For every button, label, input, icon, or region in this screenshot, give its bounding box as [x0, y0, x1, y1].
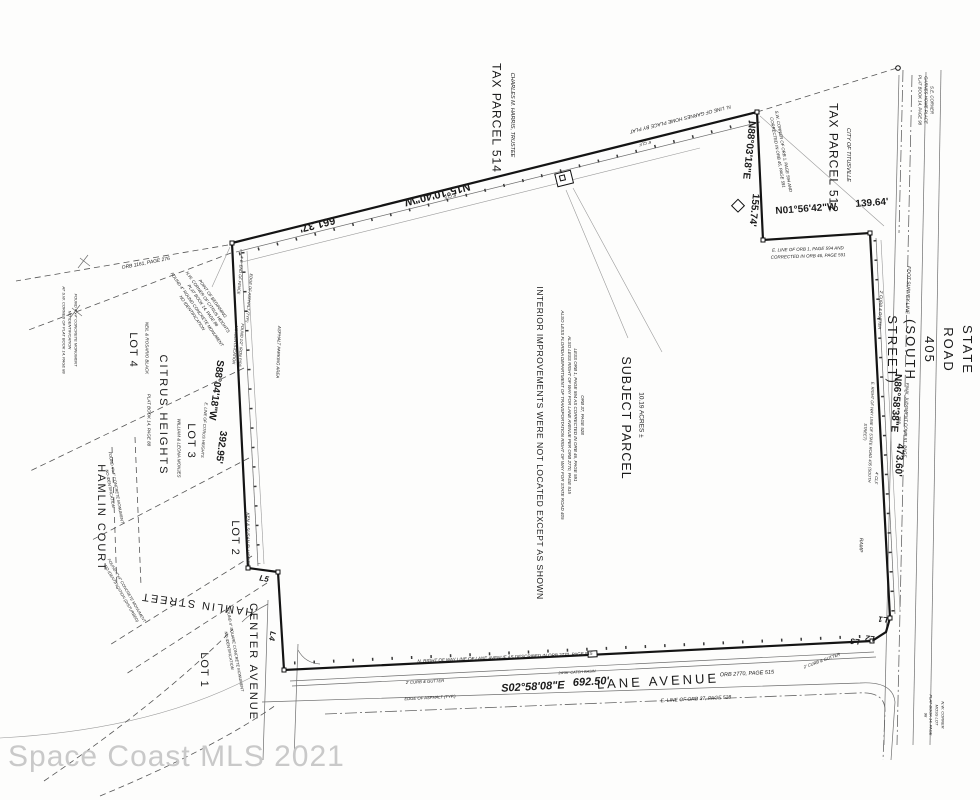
l3-label: L3	[850, 635, 860, 647]
interior-improvements-note: INTERIOR IMPROVEMENTS WERE NOT LOCATED E…	[534, 286, 546, 599]
se-corner-garnes-note: S.E. CORNER GARNES HOME PLACE PLAT BOOK …	[916, 75, 935, 125]
bearing-left-distance: 392.95'	[211, 430, 230, 465]
survey-plat-page: TAX PARCEL 514CHARLES M. HARRIS, TRUSTEE…	[0, 0, 980, 800]
tax-parcel-512-owner: CITY OF TITUSVILLE	[843, 128, 851, 182]
lot-1-label: LOT 1	[195, 652, 211, 687]
edge-asphalt-left-note: EDGE OF ASPHALT (TYP.)	[244, 273, 254, 322]
citrus-heights-label: CITRUS HEIGHTS	[154, 355, 170, 476]
lane-avenue-label: LANE AVENUE	[596, 669, 719, 694]
nw-corner-moss-note: N.W. CORNER MOSS LOT PLAT BOOK 14, PAGE …	[922, 692, 945, 738]
l5-label: L5	[258, 572, 269, 585]
orb-1161-note: ORB 1161, PAGE 276	[121, 256, 170, 272]
bearing-n01-distance: 139.64'	[855, 196, 889, 213]
e-line-orb37-note: E. LINE OF ORB 37, PAGE 528	[661, 695, 732, 706]
edge-asphalt-bottom-note: EDGE OF ASPHALT (TYP.)	[404, 694, 456, 703]
bearing-top-distance: 661.37'	[297, 211, 336, 235]
lot-2-owner: KEN & SUSAN ELLICOTT	[244, 512, 251, 565]
center-avenue-label: CENTER AVENUE	[244, 603, 260, 721]
ramp-note: RAMP	[856, 538, 864, 553]
tax-parcel-514-owner: CHARLES M. HARRIS, TRUSTEE	[507, 73, 515, 158]
fence-end-note: 4' E. END OF FENCE	[235, 255, 244, 294]
lot-4-owner: NEIL & ROSARIO BLACK	[143, 322, 150, 374]
curb-gutter-bottom-note: 2' CURB & GUTTER	[406, 678, 445, 686]
lot-3-owner: WILLIAM & LEONA MONJES	[175, 418, 182, 477]
found-pipe-note: FOUND 1/2" IRON PIPE NO IDENTIFICATION	[231, 323, 246, 367]
bearing-top-direction: N15°10'40"W	[402, 177, 471, 209]
lot-4-label: LOT 4	[124, 332, 140, 367]
tax-parcel-514-label: TAX PARCEL 514	[487, 63, 504, 173]
bearing-bottom-direction: S02°58'08"E	[501, 678, 565, 697]
sw-corner-orb-note: S.W. CORNER OF ORB 1, PAGE 594 AND CORRE…	[767, 110, 794, 194]
bearing-ne-direction: N88°03'18"E	[738, 120, 759, 180]
lot-3-label: LOT 3	[182, 423, 198, 458]
bearing-bottom-distance: 692.50'	[572, 674, 609, 692]
n-row-lane-note: N. RIGHT OF WAY LINE OF LANE AVENUE AS D…	[417, 651, 592, 665]
l1-label: L1	[878, 613, 888, 625]
fdot-survey-line-note: FDOT SURVEY LINE	[903, 266, 912, 314]
point-of-beginning-note: POINT OF BEGINNING N.W. CORNER OF CITRUS…	[164, 261, 241, 352]
subject-parcel-label: SUBJECT PARCEL	[617, 356, 635, 479]
l4-label: L4	[265, 630, 278, 641]
clf-top-note-1: 6' CLF	[443, 192, 456, 201]
garnes-line-note: N. LINE OF GARNES HOME PLACE BY PLAT	[629, 102, 732, 134]
bearing-right-distance: 473.60'	[890, 443, 907, 477]
found-monument-center-note: FOUND 4" SQUARE CONCRETE MONUMENT NO IDE…	[219, 607, 245, 693]
watermark-text: Space Coast MLS 2021	[8, 740, 345, 774]
curb-gutter-corner-note: 2' CURB & GUTTER	[803, 652, 841, 671]
clf-top-note-2: 6' CLF	[638, 139, 651, 148]
hamlin-street-label: HAMLIN STREET	[139, 587, 254, 619]
legal-description-note: ORB 37, PAGE 528 LESS ORB 1, PAGE 594 AS…	[559, 310, 585, 519]
found-monument-sw-note: FOUND 4"x4" CONCRETE MONUMENT NO IDENTIF…	[61, 286, 78, 373]
l2-label: L2	[865, 632, 875, 644]
lane-avenue-orb-note: ORB 2770, PAGE 515	[720, 670, 775, 681]
citrus-heights-plat-note: PLAT BOOK 14, PAGE 88	[145, 394, 152, 446]
subject-parcel-acreage: 10.19 ACRES ±	[636, 392, 645, 437]
lot-2-label: LOT 2	[226, 520, 242, 555]
e-line-orb1-note: E. LINE OF ORB 1, PAGE 594 AND CORRECTED…	[770, 245, 845, 261]
clf-right-note: 4' CLF	[873, 472, 880, 485]
e-line-citrus-note: E. LINE OF CITRUS HEIGHTS	[199, 402, 209, 458]
bearing-n01-direction: N01°56'42"W	[775, 201, 837, 220]
asphalt-parking-note: ASPHALT PARKING AREA	[274, 326, 282, 378]
tax-parcel-512-label: TAX PARCEL 512	[824, 103, 841, 213]
annotation-layer: TAX PARCEL 514CHARLES M. HARRIS, TRUSTEE…	[0, 0, 980, 800]
bearing-ne-distance: 155.74'	[744, 193, 762, 227]
